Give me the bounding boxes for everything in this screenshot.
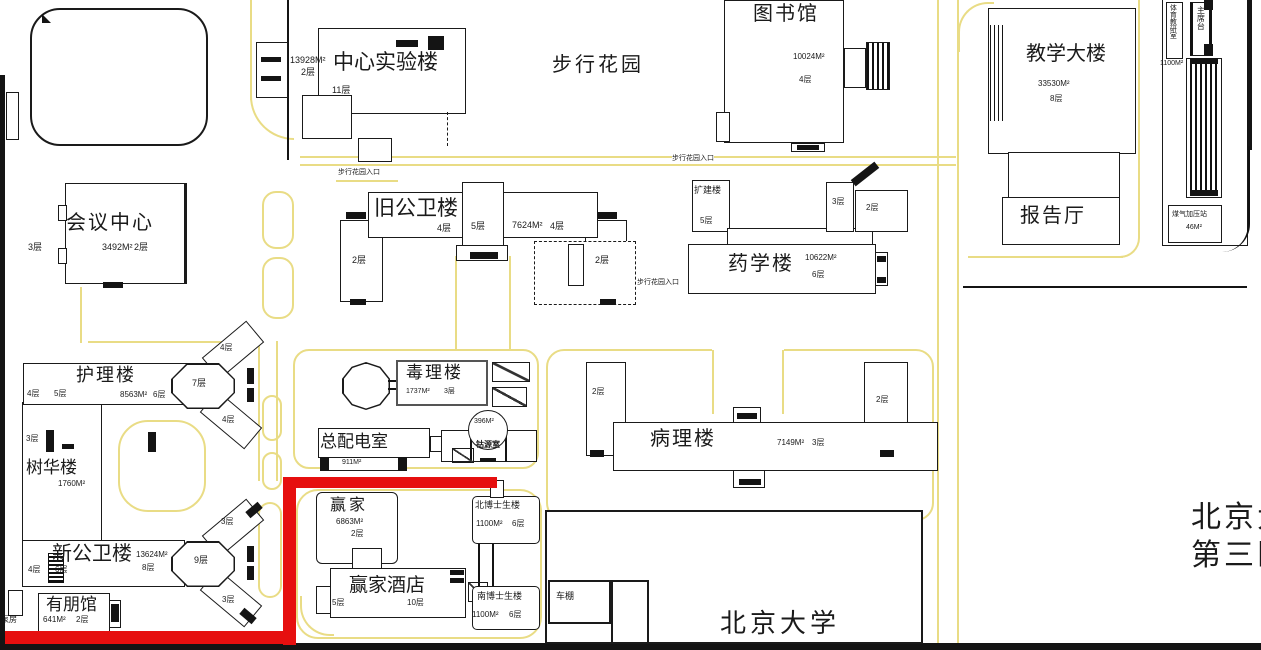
library-connector: [844, 48, 866, 88]
pku-inner-structure: [611, 580, 649, 644]
floors-label: 4层: [550, 222, 564, 231]
entrance-label: 步行花园入口: [338, 169, 380, 176]
building-label: 毒理楼: [406, 364, 463, 382]
building-label: 护理楼: [76, 366, 136, 385]
floors-label: 6层: [55, 566, 67, 574]
road: [712, 350, 714, 414]
base-cap: [320, 457, 329, 471]
building-label: 煤气加压站: [1172, 211, 1207, 218]
building-label: 泵房: [1, 616, 17, 624]
entry-mark: [739, 479, 761, 485]
area-label: 1760M²: [58, 480, 85, 488]
building-label: 旧公卫楼: [374, 198, 458, 220]
road-capsule: [262, 257, 294, 319]
building-label: 车棚: [556, 592, 574, 601]
road-capsule: [262, 191, 294, 249]
floors-label: 3层: [812, 439, 824, 447]
door-mark: [247, 388, 254, 402]
area-name: 北京大: [1191, 502, 1261, 534]
area-label: 1100M²: [1160, 60, 1183, 67]
area-label: 7624M²: [512, 221, 543, 230]
bike-shed: [548, 580, 611, 624]
floors-label: 4层: [28, 566, 40, 574]
floors-label: 3层: [28, 243, 42, 252]
entry-mark: [797, 145, 819, 150]
door-mark: [877, 277, 886, 283]
area-label: 7149M²: [777, 439, 804, 447]
stair-line: [998, 25, 999, 121]
road-curve: [1120, 236, 1140, 258]
floors-label: 2层: [76, 616, 88, 624]
floors-label: 4层: [220, 344, 232, 352]
building-label: 报告厅: [1020, 206, 1086, 227]
road: [957, 0, 959, 643]
power-room-base: [324, 457, 406, 471]
conference-bump: [58, 248, 67, 264]
building-label: 体育教研室: [1169, 4, 1176, 39]
road-loop: [118, 420, 206, 512]
door-mark: [350, 299, 366, 305]
highlight-path-bottom: [5, 631, 296, 644]
floors-label: 2层: [352, 256, 366, 265]
library-annex: [716, 112, 730, 142]
door-mark: [480, 458, 496, 462]
floors-label: 3层: [222, 596, 234, 604]
road: [258, 341, 260, 481]
area-label: 1100M²: [476, 520, 503, 528]
bleacher-cap: [1190, 190, 1218, 196]
campus-map: 中心实验楼 11层 13928M² 2层 步行花园 图书馆 10024M² 4层…: [0, 0, 1261, 650]
floors-label: 6层: [812, 271, 824, 279]
entry-mark: [470, 252, 498, 259]
corridor-line: [478, 544, 480, 586]
stair-line: [994, 25, 995, 121]
area-label: 33530M²: [1038, 80, 1070, 88]
floors-label: 7层: [192, 379, 206, 388]
attach-mark: [111, 604, 119, 622]
floors-label: 5层: [471, 222, 485, 231]
floors-label: 2层: [351, 530, 363, 538]
floors-label: 2层: [134, 243, 148, 252]
building-label: 北博士生楼: [475, 501, 520, 510]
teaching-lower: [1008, 152, 1120, 198]
area-name: 步行花园: [552, 55, 644, 76]
pharmacy-small2: [855, 190, 908, 232]
road: [968, 256, 1123, 258]
central-lab-wing: [358, 138, 392, 162]
area-label: 46M²: [1186, 224, 1202, 231]
rostrum-mark: [1204, 44, 1213, 56]
door-mark: [247, 368, 254, 384]
pharmacy-small1: [826, 182, 854, 232]
building-label: 赢家酒店: [349, 576, 425, 596]
floors-label: 6层: [153, 391, 165, 399]
building-label: 扩建楼: [694, 186, 721, 195]
base-cap: [398, 457, 407, 471]
floors-label: 2层: [595, 256, 609, 265]
floors-label: 5层: [332, 599, 344, 607]
map-edge-left: [0, 75, 5, 650]
area-label: 1100M²: [472, 611, 499, 619]
boundary-line: [963, 286, 1247, 288]
hatched-structure: [452, 448, 474, 463]
floors-label: 6层: [512, 520, 524, 528]
central-lab-annex: [256, 42, 288, 98]
old-ph-dashed-annex: [534, 241, 636, 305]
floors-label: 4层: [799, 76, 811, 84]
door-mark: [247, 546, 254, 562]
door-mark: [450, 578, 464, 583]
area-label: 911M²: [342, 459, 361, 466]
entrance-label: 步行花园入口: [672, 155, 714, 162]
central-lab-wing: [302, 95, 352, 139]
small-west-building: [6, 92, 19, 140]
area-label: 641M²: [43, 616, 66, 624]
corridor-line: [492, 544, 494, 586]
dashed-line: [447, 112, 449, 146]
door-mark: [346, 212, 366, 219]
road: [300, 156, 956, 158]
floors-label: 3层: [444, 388, 455, 395]
area-label: 13624M²: [136, 551, 168, 559]
floors-label: 3层: [221, 518, 233, 526]
door-mark: [247, 566, 254, 580]
road: [80, 287, 82, 343]
northwest-plot: [30, 8, 208, 146]
area-label: 1737M²: [406, 388, 430, 395]
area-label: 10622M²: [805, 254, 837, 262]
door-mark: [597, 212, 617, 219]
area-label: 396M²: [474, 418, 494, 425]
pump-house: [8, 590, 23, 616]
building-label: 南博士生楼: [477, 592, 522, 601]
floors-label: 3层: [26, 435, 38, 443]
area-label: 3492M²: [102, 243, 133, 252]
toxicology-rotunda: [342, 362, 390, 410]
library-stairs: [866, 42, 890, 90]
area-name: 第三医: [1191, 540, 1261, 572]
building-label: 总配电室: [320, 433, 388, 451]
old-ph-inner: [568, 244, 584, 286]
road: [782, 350, 784, 414]
area-label: 8563M²: [120, 391, 147, 399]
door-mark: [450, 570, 464, 575]
road: [937, 0, 939, 643]
area-name: 北京大学: [720, 610, 840, 637]
building-label: 有朋馆: [46, 596, 97, 614]
stair-line: [990, 25, 991, 121]
old-ph-tower: [462, 182, 504, 246]
floors-label: 10层: [407, 599, 424, 607]
area-label: 6863M²: [336, 518, 363, 526]
road: [455, 256, 457, 350]
highlight-path-side: [283, 477, 296, 645]
floors-label: 11层: [332, 86, 350, 95]
hatched-structure: [492, 362, 530, 382]
roof-mark: [396, 40, 418, 47]
floors-label: 6层: [509, 611, 521, 619]
road: [300, 164, 956, 166]
entrance-label: 步行花园入口: [637, 279, 679, 286]
bleachers: [1190, 62, 1218, 194]
building-label: 钴源室: [476, 441, 500, 449]
road: [250, 0, 252, 100]
road: [509, 256, 511, 350]
building-label: 中心实验楼: [333, 52, 438, 74]
floors-label: 9层: [194, 556, 208, 565]
entry-mark: [737, 413, 757, 419]
bleacher-cap: [1190, 58, 1218, 64]
floors-label: 3层: [832, 198, 844, 206]
building-label: 新公卫楼: [52, 544, 132, 565]
door-mark: [880, 450, 894, 457]
road-gap: [712, 345, 784, 355]
floors-label: 2层: [592, 388, 604, 396]
map-edge-bottom: [0, 643, 1261, 650]
highlight-path-top: [287, 477, 497, 488]
inner-mark: [62, 444, 74, 449]
floors-label: 5层: [54, 390, 66, 398]
floors-label: 4层: [27, 390, 39, 398]
floors-label: 4层: [222, 416, 234, 424]
area-label: 10024M²: [793, 53, 825, 61]
building-label: 教学大楼: [1026, 44, 1106, 65]
boundary-curve: [1222, 146, 1250, 252]
floors-label: 8层: [1050, 95, 1062, 103]
building-label: 树华楼: [26, 459, 77, 477]
door-mark: [877, 256, 886, 262]
entry-mark: [103, 282, 123, 288]
rostrum-mark: [1204, 0, 1213, 10]
building-label: 会议中心: [66, 213, 154, 234]
annex-bar: [261, 57, 281, 62]
building-label: 图书馆: [753, 4, 819, 25]
floors-label: 2层: [866, 204, 878, 212]
road: [336, 180, 398, 182]
building-label: 赢家: [330, 498, 368, 515]
floors-label: 8层: [142, 564, 154, 572]
hatched-structure: [492, 387, 527, 407]
area-label: 13928M²: [290, 56, 326, 65]
road: [1138, 0, 1140, 238]
roof-mark: [428, 36, 444, 50]
floors-label: 4层: [437, 224, 451, 233]
map-edge-right: [1247, 0, 1252, 150]
stair-line: [1002, 25, 1003, 121]
building-label: 药学楼: [728, 254, 794, 275]
door-mark: [590, 450, 604, 457]
road-capsule: [262, 452, 282, 490]
inner-mark: [46, 430, 54, 452]
road-capsule: [262, 395, 282, 441]
door-mark: [600, 299, 616, 305]
floors-label: 5层: [700, 217, 712, 225]
floors-label: 2层: [876, 396, 888, 404]
inner-mark: [148, 432, 156, 452]
building-label: 病理楼: [650, 429, 716, 450]
annex-bar: [261, 76, 281, 81]
floors-label: 2层: [301, 68, 315, 77]
